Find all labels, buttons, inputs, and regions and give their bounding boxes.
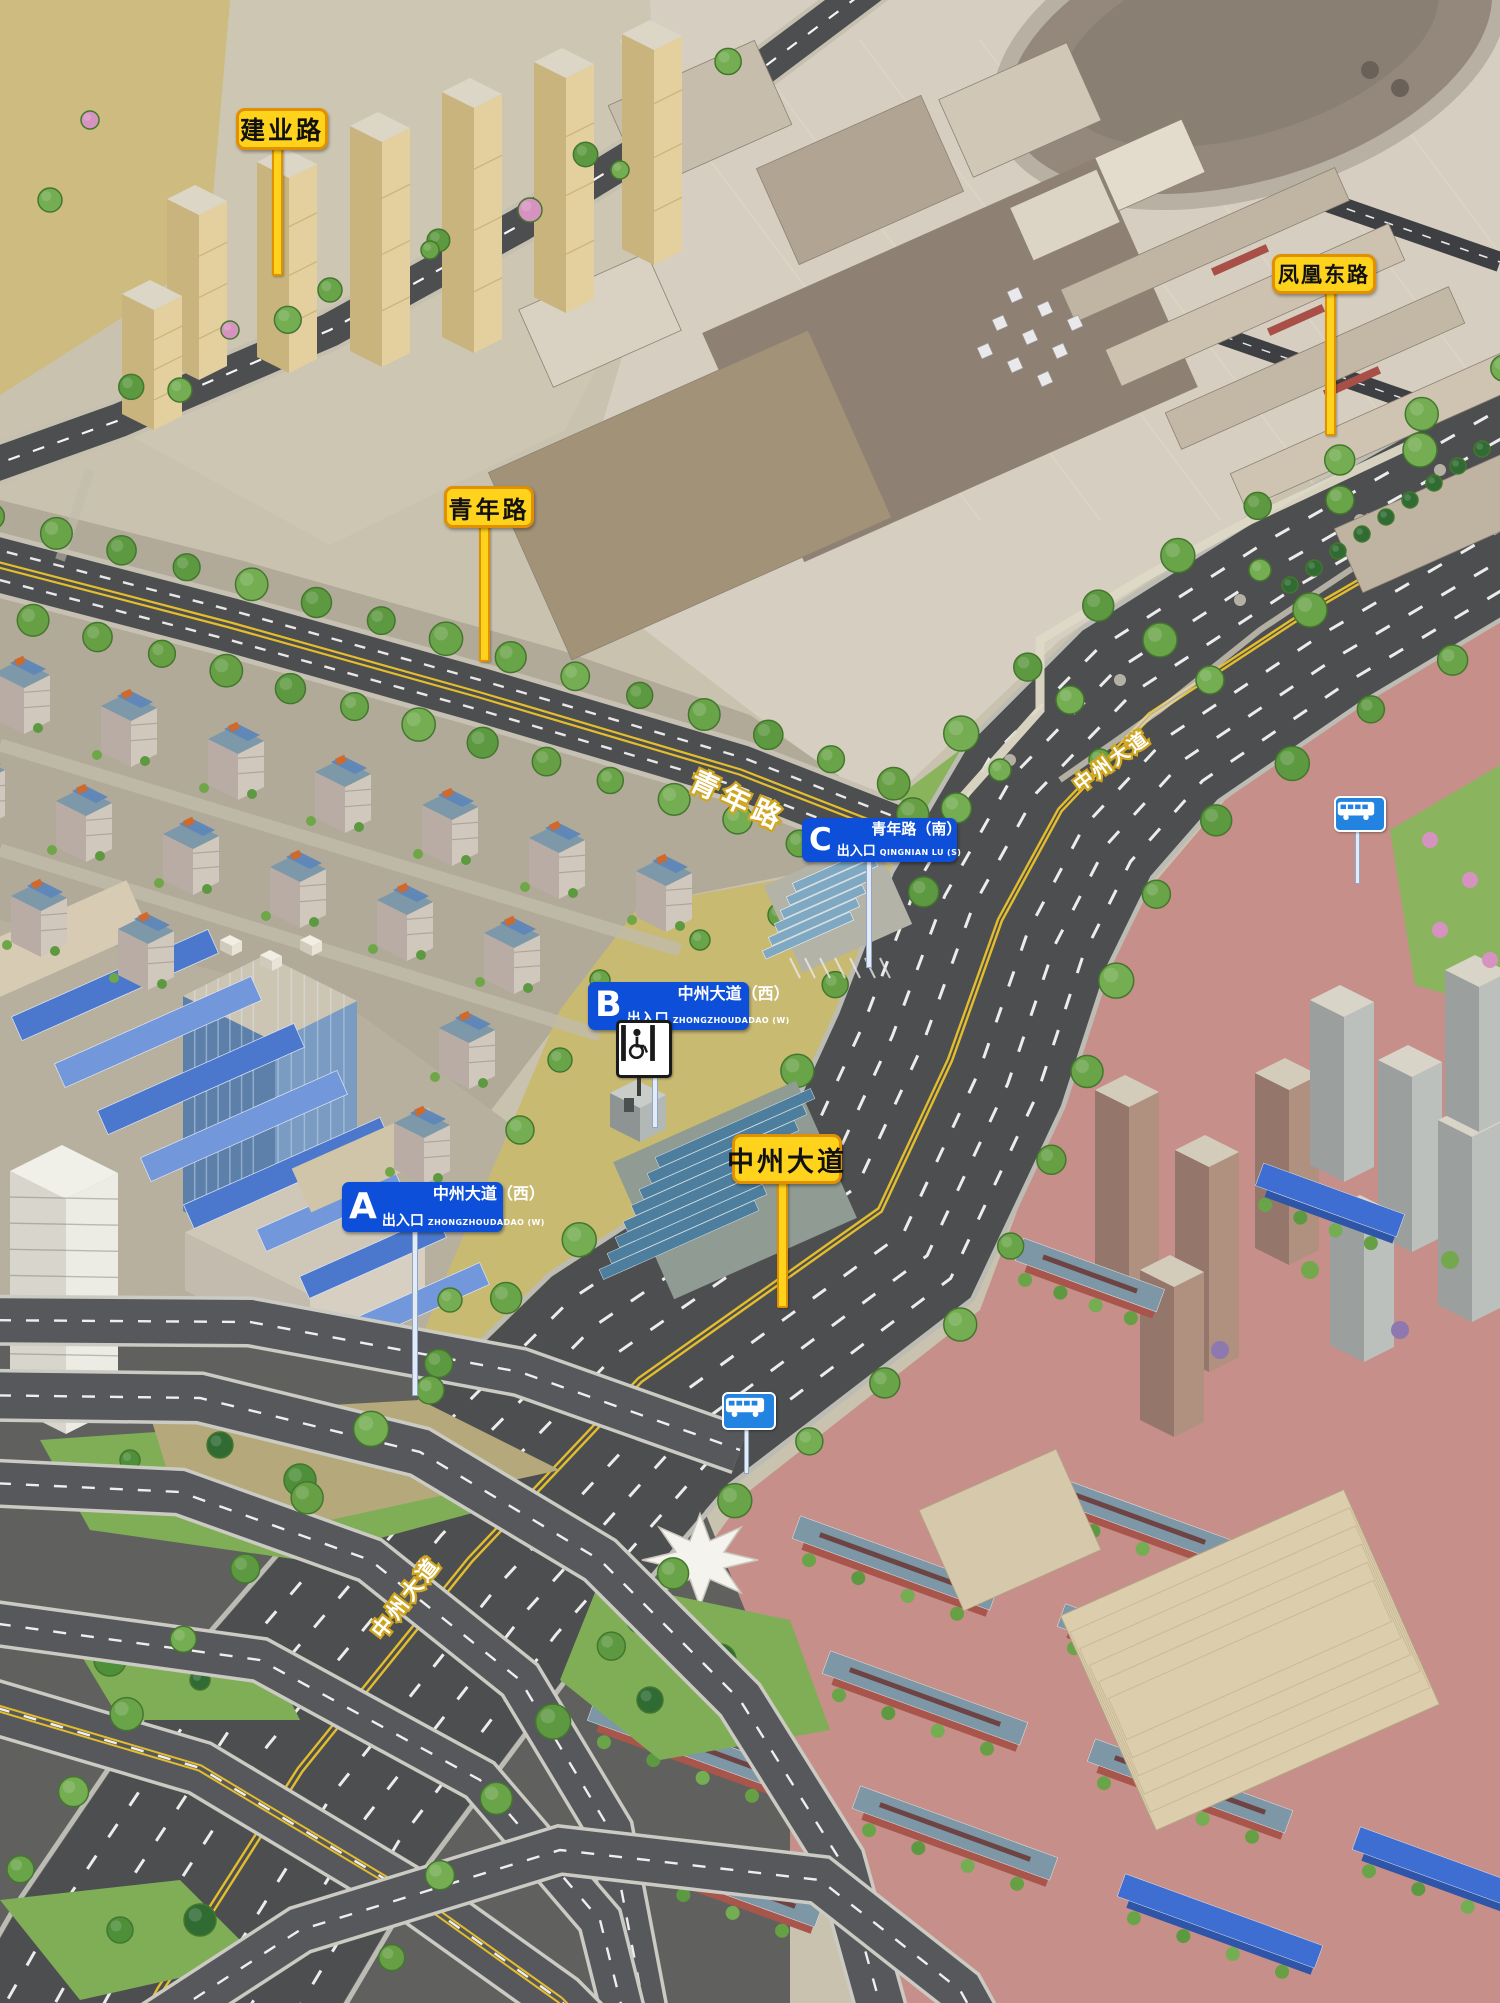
elevator-sign[interactable] (616, 1020, 672, 1078)
road-sign-fenghuang-dong-lu[interactable]: 凤凰东路 (1272, 254, 1376, 294)
entrance-road-name-en: ZHONGZHOUDADAO (W) (428, 1219, 545, 1228)
fenghuang-dong-lu-sign-pole (1325, 284, 1336, 436)
road-sign-qingnian-lu[interactable]: 青年路 (444, 486, 534, 528)
jianye-lu-sign-pole (272, 140, 283, 276)
isometric-city-map: 青年路 中州大道 中州大道 建业路 青年路 凤凰东路 中州大道 A 中州大道（西… (0, 0, 1500, 2003)
entrance-letter: C (809, 827, 832, 853)
bus-stop-icon (1336, 798, 1376, 822)
entrance-road-name-en: ZHONGZHOUDADAO (W) (673, 1017, 790, 1026)
entrance-label: 出入口 (837, 845, 876, 858)
entrance-label: 出入口 (382, 1214, 424, 1228)
elevator-icon (619, 1023, 657, 1063)
zhongzhou-dadao-sign-pole (777, 1174, 788, 1308)
entrance-letter: B (595, 991, 622, 1021)
entrance-sign-a[interactable]: A 中州大道（西） 出入口 ZHONGZHOUDADAO (W) (342, 1182, 503, 1232)
bus-stop-sign-zhongzhou-northeast[interactable] (1334, 796, 1386, 832)
entrance-c-sign-pole (866, 856, 872, 968)
entrance-road-name-en: QINGNIAN LU (S) (880, 849, 962, 858)
entrance-a-sign-pole (412, 1226, 418, 1396)
entrance-road-name-cn: 中州大道（西） (627, 986, 790, 1003)
road-sign-jianye-lu[interactable]: 建业路 (236, 108, 328, 150)
bus-stop-icon (724, 1394, 766, 1419)
qingnian-lu-sign-pole (479, 518, 490, 662)
bus-stop-sign-pole (1355, 826, 1360, 884)
entrance-road-name-cn: 青年路（南） (837, 822, 962, 838)
entrance-sign-c[interactable]: C 青年路（南） 出入口 QINGNIAN LU (S) (802, 818, 957, 862)
road-sign-zhongzhou-dadao[interactable]: 中州大道 (732, 1134, 842, 1184)
bus-stop-sign-zhongzhou-southwest[interactable] (722, 1392, 776, 1430)
bus-stop-sign-pole (744, 1424, 749, 1474)
entrance-road-name-cn: 中州大道（西） (382, 1186, 545, 1203)
entrance-letter: A (349, 1192, 377, 1223)
